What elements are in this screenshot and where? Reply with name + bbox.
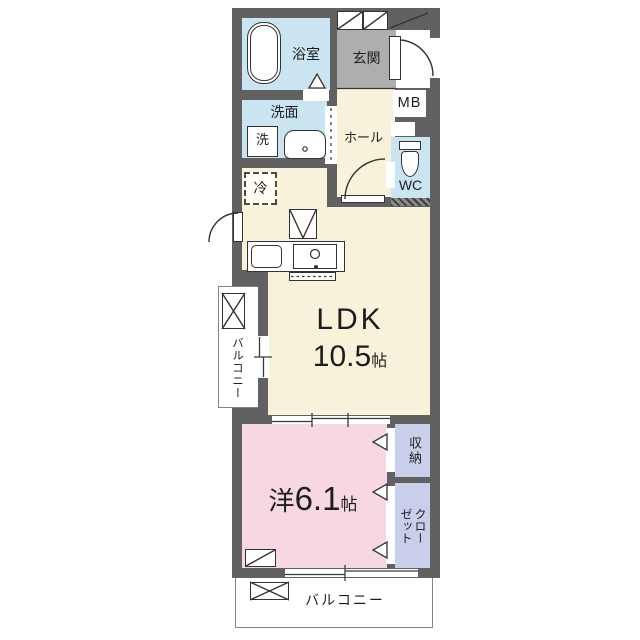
floor-plan-canvas: 浴室 玄関 MB 洗面 洗 ホール WC 冷 LDK 10.5帖 バルコニー 洋… — [0, 0, 640, 640]
entrance-label: 玄関 — [337, 50, 396, 66]
storage-door-panel — [386, 428, 395, 472]
bath-door-opening — [303, 89, 329, 101]
ldk-bedroom-sliding-door — [272, 416, 390, 424]
bathroom-label: 浴室 — [282, 46, 330, 62]
bathtub-icon — [247, 22, 281, 84]
ldk-size-label: 10.5帖 — [285, 340, 415, 375]
closet-label: クローゼット — [399, 496, 427, 556]
stove-icon — [251, 245, 282, 268]
shoe-cabinet-icon — [363, 11, 388, 30]
equipment-box-icon — [222, 293, 245, 329]
range-hood-icon — [289, 209, 317, 239]
storage-label: 収納 — [404, 432, 421, 470]
washer-label: 洗 — [247, 133, 278, 148]
balcony-bottom-label: バルコニー — [290, 592, 400, 608]
ac-unit-icon — [245, 549, 276, 567]
ldk-label: LDK — [285, 303, 415, 338]
shoe-cabinet-icon — [337, 11, 363, 30]
back-door-leaf — [233, 212, 243, 242]
fridge-label: 冷 — [244, 180, 277, 196]
equipment-box-icon — [250, 582, 289, 600]
hall-label: ホール — [332, 131, 395, 146]
counter-edge — [289, 272, 336, 281]
bedroom-label: 洋6.1帖 — [238, 480, 388, 518]
balcony-left-label: バルコニー — [223, 330, 243, 406]
toilet-tank-icon — [399, 141, 421, 150]
bedroom-window — [285, 569, 418, 577]
kitchen-sink-icon — [293, 244, 337, 269]
vanity-sink-icon — [284, 130, 326, 159]
wc-label: WC — [391, 177, 430, 193]
entrance-door-opening — [429, 38, 440, 78]
shaft-hatch — [391, 198, 430, 206]
entrance-door-swing-area — [396, 30, 430, 88]
washroom-label: 洗面 — [242, 104, 327, 120]
balcony-left-window — [256, 336, 269, 378]
hall-door-leaf — [341, 195, 385, 203]
meter-box-label: MB — [393, 95, 426, 112]
